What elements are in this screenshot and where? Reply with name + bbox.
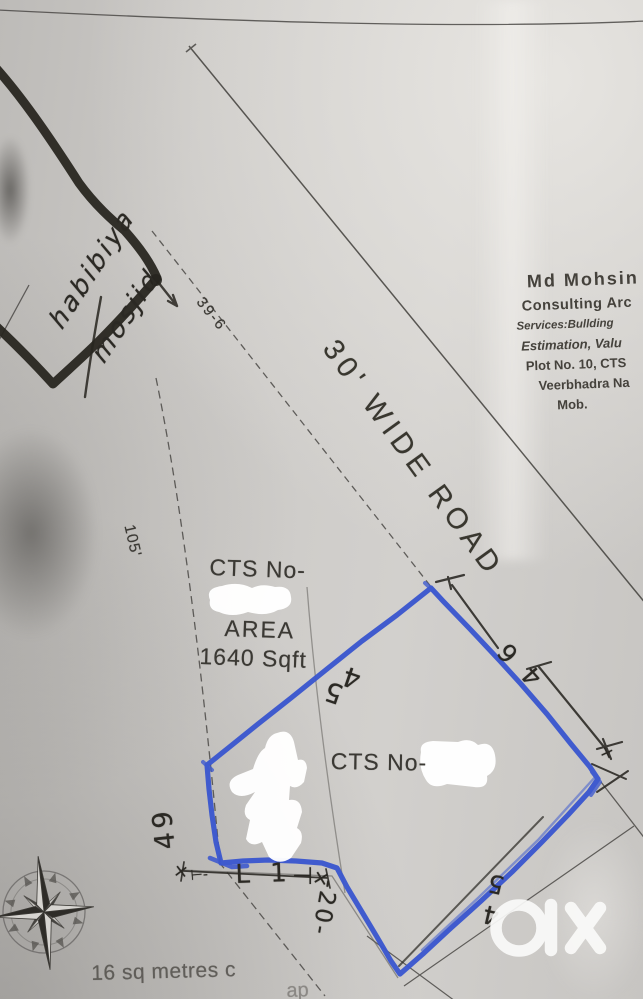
site-plan-photo: habibiya mosjid 30' WIDE ROAD 39-6 105' …	[0, 0, 643, 999]
olx-watermark-icon	[0, 0, 643, 999]
